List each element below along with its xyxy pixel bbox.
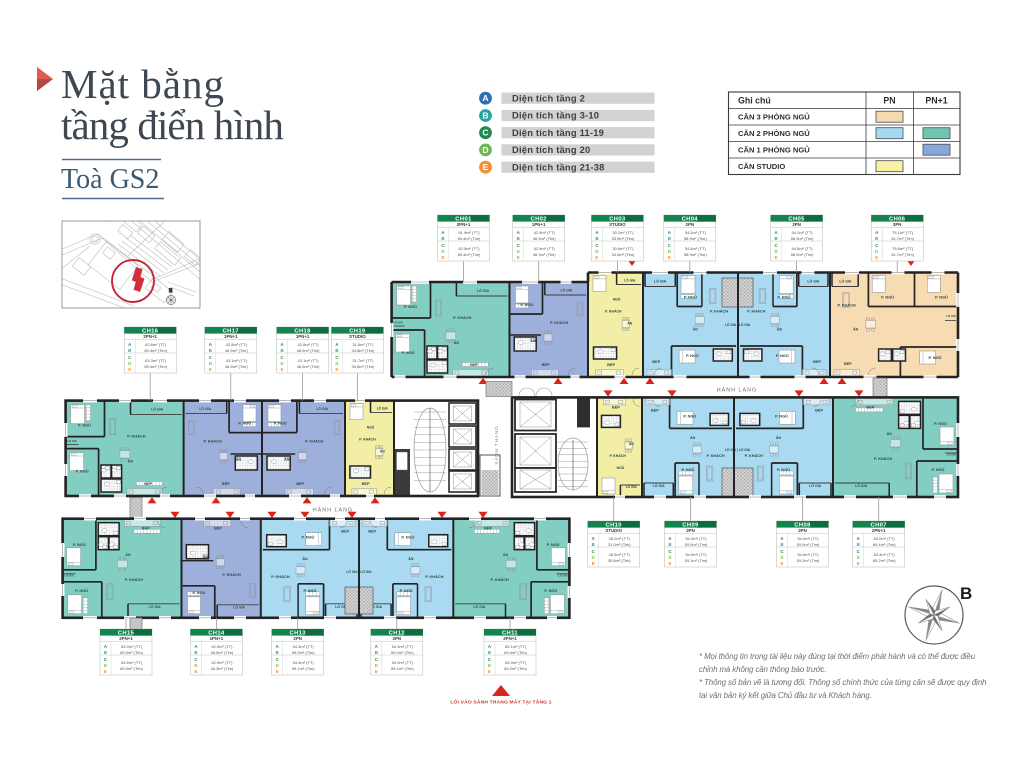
svg-text:E: E	[668, 255, 671, 260]
svg-text:63.0m² (TT): 63.0m² (TT)	[121, 644, 143, 649]
svg-text:D: D	[857, 555, 860, 560]
svg-text:46.5m² (Tim): 46.5m² (Tim)	[225, 348, 248, 353]
svg-text:B: B	[194, 650, 197, 655]
svg-text:LÔ GIA: LÔ GIA	[561, 288, 573, 293]
svg-text:E: E	[209, 367, 212, 372]
svg-text:BẾP: BẾP	[607, 362, 615, 367]
svg-text:P. KHÁCH: P. KHÁCH	[305, 439, 323, 444]
svg-text:STUDIO: STUDIO	[605, 528, 622, 533]
svg-text:3PN: 3PN	[893, 222, 902, 227]
svg-text:75.6m² (TT): 75.6m² (TT)	[892, 246, 914, 251]
svg-text:P. KHÁCH: P. KHÁCH	[453, 315, 471, 320]
svg-text:B: B	[857, 542, 860, 547]
svg-text:46.5m² (Tim): 46.5m² (Tim)	[533, 236, 556, 241]
svg-text:P. NGỦ: P. NGỦ	[932, 467, 945, 472]
svg-text:chỉnh mà không cần thông báo t: chỉnh mà không cần thông báo trước.	[699, 665, 826, 674]
svg-text:59.1m² (Tim): 59.1m² (Tim)	[391, 666, 414, 671]
svg-text:BẾP: BẾP	[867, 404, 875, 409]
svg-text:ĂN: ĂN	[777, 327, 783, 332]
svg-text:81.7m² (Tim): 81.7m² (Tim)	[891, 236, 914, 241]
svg-text:54.0m² (TT): 54.0m² (TT)	[797, 536, 819, 541]
svg-text:CĂN 2 PHÒNG NGỦ: CĂN 2 PHÒNG NGỦ	[738, 129, 810, 138]
svg-text:ĂN: ĂN	[128, 459, 134, 464]
svg-text:BẾP: BẾP	[484, 526, 492, 531]
svg-text:69.4m² (Tim): 69.4m² (Tim)	[144, 348, 167, 353]
svg-text:Diện tích tầng 20: Diện tích tầng 20	[512, 144, 590, 155]
svg-text:P. KHÁCH: P. KHÁCH	[706, 453, 724, 458]
svg-text:E: E	[488, 669, 491, 674]
svg-text:B: B	[488, 650, 491, 655]
svg-text:1PN+1: 1PN+1	[296, 334, 310, 339]
svg-text:P. KHÁCH: P. KHÁCH	[271, 574, 289, 579]
svg-text:2PN: 2PN	[792, 222, 801, 227]
svg-text:LÔ GIA: LÔ GIA	[809, 483, 822, 488]
svg-text:ĂN: ĂN	[503, 552, 509, 557]
svg-text:63.3m² (TT): 63.3m² (TT)	[505, 660, 527, 665]
svg-text:tầng điển hình: tầng điển hình	[61, 102, 283, 148]
svg-text:61.9m² (TT): 61.9m² (TT)	[458, 230, 480, 235]
svg-text:D: D	[335, 361, 338, 366]
svg-text:2PN+1: 2PN+1	[457, 222, 471, 227]
svg-text:HÀNH LANG: HÀNH LANG	[313, 507, 353, 514]
svg-text:P. NGỦ: P. NGỦ	[274, 421, 287, 426]
svg-text:63.4m² (TT): 63.4m² (TT)	[874, 552, 896, 557]
svg-text:B: B	[875, 236, 878, 241]
svg-text:1PN+1: 1PN+1	[224, 334, 238, 339]
svg-text:B: B	[960, 584, 972, 603]
svg-text:B: B	[281, 348, 284, 353]
svg-text:81.7m² (Tim): 81.7m² (Tim)	[891, 252, 914, 257]
svg-text:P. NGỦ: P. NGỦ	[544, 588, 557, 593]
svg-text:34.0m² (Tim): 34.0m² (Tim)	[612, 252, 635, 257]
svg-text:B: B	[128, 348, 131, 353]
svg-text:LÔ GIA: LÔ GIA	[473, 604, 486, 609]
svg-text:D: D	[592, 555, 595, 560]
svg-text:34.8m² (Tim): 34.8m² (Tim)	[352, 364, 375, 369]
svg-text:PN+1: PN+1	[925, 95, 947, 105]
svg-text:ĂN: ĂN	[530, 338, 536, 343]
svg-text:46.5m² (Tim): 46.5m² (Tim)	[297, 364, 320, 369]
svg-text:C: C	[482, 128, 488, 138]
svg-text:P. NGỦ: P. NGỦ	[192, 590, 205, 595]
svg-text:B: B	[104, 650, 107, 655]
svg-text:69.3m² (Tim): 69.3m² (Tim)	[120, 666, 143, 671]
svg-text:E: E	[375, 669, 378, 674]
svg-text:A: A	[482, 93, 488, 103]
svg-text:P. NGỦ: P. NGỦ	[402, 350, 415, 355]
svg-text:P. NGỦ: P. NGỦ	[303, 588, 316, 593]
svg-text:P. NGỦ: P. NGỦ	[935, 295, 948, 300]
svg-text:LÔ GIA: LÔ GIA	[151, 407, 164, 412]
svg-text:2PN: 2PN	[293, 636, 302, 641]
svg-text:ĂN: ĂN	[302, 556, 308, 561]
svg-text:D: D	[104, 663, 107, 668]
svg-text:LÔ GIA: LÔ GIA	[199, 406, 211, 411]
svg-text:E: E	[104, 669, 107, 674]
svg-text:BẾP: BẾP	[542, 362, 550, 367]
svg-text:ĂN: ĂN	[776, 435, 782, 440]
svg-text:B: B	[375, 650, 378, 655]
svg-text:D: D	[595, 249, 598, 254]
svg-text:BẾP: BẾP	[651, 407, 659, 412]
svg-text:P. KHÁCH: P. KHÁCH	[874, 456, 892, 461]
svg-text:E: E	[442, 255, 445, 260]
svg-text:D: D	[281, 361, 284, 366]
svg-text:59.0m² (Tim): 59.0m² (Tim)	[292, 650, 315, 655]
svg-text:LÔ GIA: LÔ GIA	[839, 279, 852, 284]
svg-text:CĂN 3 PHÒNG NGỦ: CĂN 3 PHÒNG NGỦ	[738, 113, 810, 122]
svg-text:P. NGỦ: P. NGỦ	[777, 467, 790, 472]
svg-text:E: E	[592, 561, 595, 566]
svg-text:ĂN: ĂN	[454, 340, 460, 345]
svg-text:69.4m² (Tim): 69.4m² (Tim)	[458, 236, 481, 241]
svg-text:E: E	[276, 669, 279, 674]
svg-text:69.4m² (Tim): 69.4m² (Tim)	[873, 542, 896, 547]
svg-text:B: B	[775, 236, 778, 241]
svg-text:B: B	[668, 236, 671, 241]
svg-text:P. NGỦ: P. NGỦ	[73, 542, 86, 547]
svg-text:B: B	[780, 542, 783, 547]
svg-text:2PN+1: 2PN+1	[119, 636, 133, 641]
svg-text:LÔ GIA: LÔ GIA	[654, 279, 667, 284]
svg-text:58.9m² (Tim): 58.9m² (Tim)	[684, 252, 707, 257]
svg-text:BẾP: BẾP	[612, 404, 620, 409]
svg-text:P. KHÁCH: P. KHÁCH	[222, 572, 240, 577]
svg-text:LÔ GIA: LÔ GIA	[653, 483, 666, 488]
svg-text:B: B	[517, 236, 520, 241]
svg-text:D: D	[775, 249, 778, 254]
svg-text:LÔ GIA: LÔ GIA	[807, 279, 820, 284]
svg-text:B: B	[482, 110, 488, 120]
svg-text:58.9m² (Tim): 58.9m² (Tim)	[791, 252, 814, 257]
svg-text:E: E	[281, 367, 284, 372]
svg-text:CĂN STUDIO: CĂN STUDIO	[738, 162, 785, 171]
svg-text:E: E	[857, 561, 860, 566]
svg-text:E: E	[781, 561, 784, 566]
svg-text:1PN+1: 1PN+1	[532, 222, 546, 227]
svg-text:43.1m² (TT): 43.1m² (TT)	[298, 358, 320, 363]
svg-text:30.2m² (TT): 30.2m² (TT)	[612, 230, 634, 235]
svg-text:59.1m² (Tim): 59.1m² (Tim)	[685, 558, 708, 563]
svg-text:1PN+1: 1PN+1	[210, 636, 224, 641]
svg-text:D: D	[441, 249, 444, 254]
svg-text:ĂN: ĂN	[887, 431, 893, 436]
svg-text:42.9m² (TT): 42.9m² (TT)	[534, 230, 556, 235]
svg-text:D: D	[875, 249, 878, 254]
svg-text:BẾP: BẾP	[341, 529, 349, 534]
svg-text:59.0m² (Tim): 59.0m² (Tim)	[797, 542, 820, 547]
svg-text:31.7m² (TT): 31.7m² (TT)	[352, 358, 374, 363]
svg-text:D: D	[276, 663, 279, 668]
svg-text:STUDIO: STUDIO	[349, 334, 366, 339]
svg-text:31.6m² (TT): 31.6m² (TT)	[352, 342, 374, 347]
svg-text:46.5m² (Tim): 46.5m² (Tim)	[297, 348, 320, 353]
svg-text:E: E	[775, 255, 778, 260]
svg-text:54.3m² (TT): 54.3m² (TT)	[685, 536, 707, 541]
svg-text:P. KHÁCH: P. KHÁCH	[127, 434, 145, 439]
svg-text:43.1m² (TT): 43.1m² (TT)	[226, 358, 248, 363]
svg-text:LÔ GIA: LÔ GIA	[393, 320, 403, 325]
svg-text:P. KHÁCH: P. KHÁCH	[609, 453, 626, 458]
svg-text:BẾP: BẾP	[368, 529, 376, 534]
svg-text:ĂN: ĂN	[627, 321, 632, 326]
svg-text:P. NGỦ: P. NGỦ	[78, 423, 91, 428]
svg-text:2PN: 2PN	[686, 528, 695, 533]
svg-text:E: E	[128, 367, 131, 372]
svg-text:58.9m² (Tim): 58.9m² (Tim)	[684, 236, 707, 241]
svg-text:54.9m² (TT): 54.9m² (TT)	[392, 660, 414, 665]
svg-text:54.3m² (TT): 54.3m² (TT)	[392, 644, 414, 649]
svg-text:E: E	[335, 367, 338, 372]
svg-text:P. KHÁCH: P. KHÁCH	[425, 574, 443, 579]
svg-text:42.8m² (TT): 42.8m² (TT)	[226, 342, 248, 347]
svg-text:2PN: 2PN	[393, 636, 402, 641]
svg-text:LÔ GIA: LÔ GIA	[477, 288, 490, 293]
svg-text:BẾP: BẾP	[142, 526, 150, 531]
svg-text:LÔ GIA: LÔ GIA	[64, 572, 74, 577]
svg-text:46.3m² (Tim): 46.3m² (Tim)	[533, 252, 556, 257]
svg-text:E: E	[875, 255, 878, 260]
svg-text:STUDIO: STUDIO	[609, 222, 626, 227]
svg-text:BẾP: BẾP	[470, 362, 478, 367]
svg-text:P. NGỦ: P. NGỦ	[775, 413, 788, 418]
svg-text:69.2m² (Tim): 69.2m² (Tim)	[873, 558, 896, 563]
svg-text:ĂN: ĂN	[236, 457, 242, 462]
svg-text:P. KHÁCH: P. KHÁCH	[550, 320, 568, 325]
svg-text:D: D	[488, 663, 491, 668]
svg-text:63.6m² (TT): 63.6m² (TT)	[121, 660, 143, 665]
svg-text:LÔ GIA: LÔ GIA	[377, 406, 389, 411]
svg-text:62.5m² (TT): 62.5m² (TT)	[458, 246, 480, 251]
svg-text:P. KHÁCH: P. KHÁCH	[125, 577, 143, 582]
svg-text:2PN+1: 2PN+1	[503, 636, 517, 641]
svg-text:LÔ GIA | LÔ GIA: LÔ GIA | LÔ GIA	[725, 447, 751, 452]
svg-text:2PN+1: 2PN+1	[872, 528, 886, 533]
svg-text:69.4m² (Tim): 69.4m² (Tim)	[504, 650, 527, 655]
svg-text:54.3m² (TT): 54.3m² (TT)	[293, 644, 315, 649]
svg-text:D: D	[780, 555, 783, 560]
svg-text:LÔ GIA: LÔ GIA	[624, 278, 636, 283]
svg-text:ĂN: ĂN	[690, 435, 696, 440]
svg-text:P. NGỦ: P. NGỦ	[400, 588, 413, 593]
svg-text:Diện tích tầng 3-10: Diện tích tầng 3-10	[512, 110, 599, 121]
svg-text:P. NGỦ: P. NGỦ	[75, 588, 88, 593]
svg-text:P. NGỦ: P. NGỦ	[683, 413, 696, 418]
svg-text:2PN+1: 2PN+1	[143, 334, 157, 339]
svg-text:B: B	[595, 236, 598, 241]
svg-text:B: B	[668, 542, 671, 547]
svg-text:58.9m² (Tim): 58.9m² (Tim)	[791, 236, 814, 241]
svg-text:BẾP: BẾP	[844, 361, 852, 366]
svg-text:P. KHÁCH: P. KHÁCH	[710, 309, 728, 314]
svg-text:LÔ GIA: LÔ GIA	[626, 484, 638, 489]
svg-text:E: E	[483, 162, 489, 172]
svg-text:P. NGỦ: P. NGỦ	[686, 353, 699, 358]
svg-text:P. NGỦ: P. NGỦ	[547, 542, 560, 547]
svg-text:Ghi chú: Ghi chú	[738, 95, 771, 105]
svg-text:PN: PN	[883, 95, 895, 105]
svg-text:E: E	[194, 669, 197, 674]
svg-text:Toà GS2: Toà GS2	[61, 164, 159, 195]
svg-text:P. NGỦ: P. NGỦ	[778, 295, 791, 300]
svg-text:46.3m² (Tim): 46.3m² (Tim)	[211, 666, 234, 671]
svg-text:Diện tích tầng 21-38: Diện tích tầng 21-38	[512, 161, 605, 172]
svg-text:P. NGỦ: P. NGỦ	[881, 295, 894, 300]
svg-text:tại văn bản ký kết giữa Chủ đầ: tại văn bản ký kết giữa Chủ đầu tư và Kh…	[699, 691, 872, 700]
svg-text:59.2m² (Tim): 59.2m² (Tim)	[797, 558, 820, 563]
svg-text:LÔ GIA: LÔ GIA	[946, 313, 956, 318]
svg-text:Mặt bằng: Mặt bằng	[61, 61, 225, 107]
svg-text:2PN: 2PN	[686, 222, 695, 227]
svg-text:P. KHÁCH: P. KHÁCH	[491, 577, 509, 582]
svg-text:BẾP: BẾP	[813, 359, 821, 364]
svg-text:46.5m² (Tim): 46.5m² (Tim)	[225, 364, 248, 369]
svg-text:63.1m² (TT): 63.1m² (TT)	[505, 644, 527, 649]
svg-text:2PN: 2PN	[798, 528, 807, 533]
svg-text:31.0m² (Tim): 31.0m² (Tim)	[608, 542, 631, 547]
svg-text:ĂN: ĂN	[380, 449, 385, 454]
svg-text:LÔ GIA: LÔ GIA	[558, 572, 568, 577]
svg-text:E: E	[595, 255, 598, 260]
svg-text:54.6m² (TT): 54.6m² (TT)	[685, 246, 707, 251]
svg-text:BẾP: BẾP	[144, 481, 152, 486]
svg-text:LÔ GIA: LÔ GIA	[316, 406, 328, 411]
svg-text:30.8m² (Tim): 30.8m² (Tim)	[608, 558, 631, 563]
svg-text:ĂN: ĂN	[853, 327, 859, 332]
svg-text:LÔ GIA: LÔ GIA	[947, 452, 957, 457]
svg-text:P. KHÁCH: P. KHÁCH	[837, 303, 855, 308]
svg-text:ĂN: ĂN	[284, 457, 290, 462]
svg-text:LÔ GIA: LÔ GIA	[149, 604, 162, 609]
svg-text:ĂN: ĂN	[125, 552, 131, 557]
svg-text:P. KHÁCH: P. KHÁCH	[747, 309, 765, 314]
svg-text:SẢNH THANG: SẢNH THANG	[493, 425, 500, 464]
svg-text:CĂN 1 PHÒNG NGỦ: CĂN 1 PHÒNG NGỦ	[738, 146, 810, 155]
svg-text:69.4m² (Tim): 69.4m² (Tim)	[458, 252, 481, 257]
svg-text:BẾP: BẾP	[214, 526, 222, 531]
svg-text:P. NGỦ: P. NGỦ	[238, 421, 251, 426]
svg-text:LÔ GIA: LÔ GIA	[855, 483, 868, 488]
svg-text:NGỦ: NGỦ	[367, 425, 375, 430]
svg-text:P. NGỦ: P. NGỦ	[684, 295, 697, 300]
svg-text:54.3m² (TT): 54.3m² (TT)	[685, 230, 707, 235]
svg-text:63.3m² (TT): 63.3m² (TT)	[145, 358, 167, 363]
svg-text:54.2m² (TT): 54.2m² (TT)	[792, 230, 814, 235]
svg-text:Diện tích tầng 2: Diện tích tầng 2	[512, 92, 585, 103]
svg-text:B: B	[335, 348, 338, 353]
svg-text:46.5m² (Tim): 46.5m² (Tim)	[211, 650, 234, 655]
svg-text:ĂN: ĂN	[203, 554, 209, 559]
svg-text:NGỦ: NGỦ	[617, 465, 625, 470]
svg-text:BẾP: BẾP	[652, 359, 660, 364]
svg-text:NGỦ: NGỦ	[613, 297, 621, 302]
svg-text:P. NGỦ: P. NGỦ	[929, 355, 942, 360]
svg-text:LÔ GIA: LÔ GIA	[233, 604, 245, 609]
svg-text:D: D	[482, 145, 488, 155]
svg-text:D: D	[128, 361, 131, 366]
svg-text:42.8m² (TT): 42.8m² (TT)	[298, 342, 320, 347]
svg-text:P. NGỦ: P. NGỦ	[934, 421, 947, 426]
svg-text:62.6m² (TT): 62.6m² (TT)	[145, 342, 167, 347]
svg-text:D: D	[194, 663, 197, 668]
svg-text:E: E	[669, 561, 672, 566]
svg-text:P. KHÁCH: P. KHÁCH	[605, 309, 622, 314]
svg-text:69.3m² (Tim): 69.3m² (Tim)	[120, 650, 143, 655]
svg-text:59.0m² (Tim): 59.0m² (Tim)	[391, 650, 414, 655]
svg-text:30.6m² (TT): 30.6m² (TT)	[612, 246, 634, 251]
svg-text:54.5m² (TT): 54.5m² (TT)	[792, 246, 814, 251]
svg-text:P. NGỦ: P. NGỦ	[776, 353, 789, 358]
svg-text:69.4m² (Tim): 69.4m² (Tim)	[144, 364, 167, 369]
svg-text:B: B	[441, 236, 444, 241]
svg-text:34.8m² (Tim): 34.8m² (Tim)	[352, 348, 375, 353]
svg-text:42.9m² (TT): 42.9m² (TT)	[211, 644, 233, 649]
svg-text:ĂN: ĂN	[693, 327, 699, 332]
svg-text:D: D	[209, 361, 212, 366]
svg-text:28.9m² (TT): 28.9m² (TT)	[609, 552, 631, 557]
svg-text:Diện tích tầng 11-19: Diện tích tầng 11-19	[512, 127, 604, 138]
svg-text:BẾP: BẾP	[222, 481, 230, 486]
svg-text:B: B	[592, 542, 595, 547]
svg-text:42.9m² (TT): 42.9m² (TT)	[534, 246, 556, 251]
svg-text:ĂN: ĂN	[629, 441, 634, 446]
svg-text:28.2m² (TT): 28.2m² (TT)	[609, 536, 631, 541]
svg-text:P. NGỦ: P. NGỦ	[682, 467, 695, 472]
svg-text:LÔ GIA: LÔ GIA	[67, 438, 77, 443]
svg-text:P. NGỦ: P. NGỦ	[402, 535, 415, 540]
svg-text:* Thông số bản vẽ là tương đối: * Thông số bản vẽ là tương đối. Thông số…	[699, 678, 987, 687]
svg-text:P. NGỦ: P. NGỦ	[76, 469, 89, 474]
svg-text:59.0m² (Tim): 59.0m² (Tim)	[685, 542, 708, 547]
svg-text:BẾP: BẾP	[362, 481, 370, 486]
svg-text:P. NGỦ: P. NGỦ	[404, 304, 417, 309]
svg-text:B: B	[276, 650, 279, 655]
svg-text:P. KHÁCH: P. KHÁCH	[203, 439, 221, 444]
svg-text:P. NGỦ: P. NGỦ	[301, 535, 314, 540]
svg-text:75.1m² (TT): 75.1m² (TT)	[892, 230, 914, 235]
svg-text:E: E	[517, 255, 520, 260]
svg-text:69.2m² (Tim): 69.2m² (Tim)	[504, 666, 527, 671]
svg-text:D: D	[517, 249, 520, 254]
svg-text:* Mọi thông tin trong tài liệu: * Mọi thông tin trong tài liệu này đúng …	[699, 652, 976, 661]
svg-text:ĂN: ĂN	[408, 556, 414, 561]
svg-text:LỐI VÀO SẢNH THANG MÁY TẠI TẦN: LỐI VÀO SẢNH THANG MÁY TẠI TẦNG 1	[450, 699, 551, 706]
svg-text:P. NGỦ: P. NGỦ	[520, 302, 533, 307]
svg-text:P. KHÁCH: P. KHÁCH	[359, 437, 376, 442]
svg-text:P. KHÁCH: P. KHÁCH	[745, 453, 763, 458]
svg-text:BẾP: BẾP	[296, 481, 304, 486]
svg-text:42.9m² (TT): 42.9m² (TT)	[211, 660, 233, 665]
svg-text:59.1m² (Tim): 59.1m² (Tim)	[292, 666, 315, 671]
svg-text:B: B	[209, 348, 212, 353]
svg-text:D: D	[668, 555, 671, 560]
svg-text:HÀNH LANG: HÀNH LANG	[717, 387, 757, 394]
svg-text:63.0m² (TT): 63.0m² (TT)	[874, 536, 896, 541]
svg-text:54.9m² (TT): 54.9m² (TT)	[685, 552, 707, 557]
svg-text:D: D	[668, 249, 671, 254]
svg-text:D: D	[375, 663, 378, 668]
svg-text:54.9m² (TT): 54.9m² (TT)	[293, 660, 315, 665]
svg-text:54.5m² (TT): 54.5m² (TT)	[797, 552, 819, 557]
svg-text:BẾP: BẾP	[815, 407, 823, 412]
svg-text:33.9m² (Tim): 33.9m² (Tim)	[612, 236, 635, 241]
